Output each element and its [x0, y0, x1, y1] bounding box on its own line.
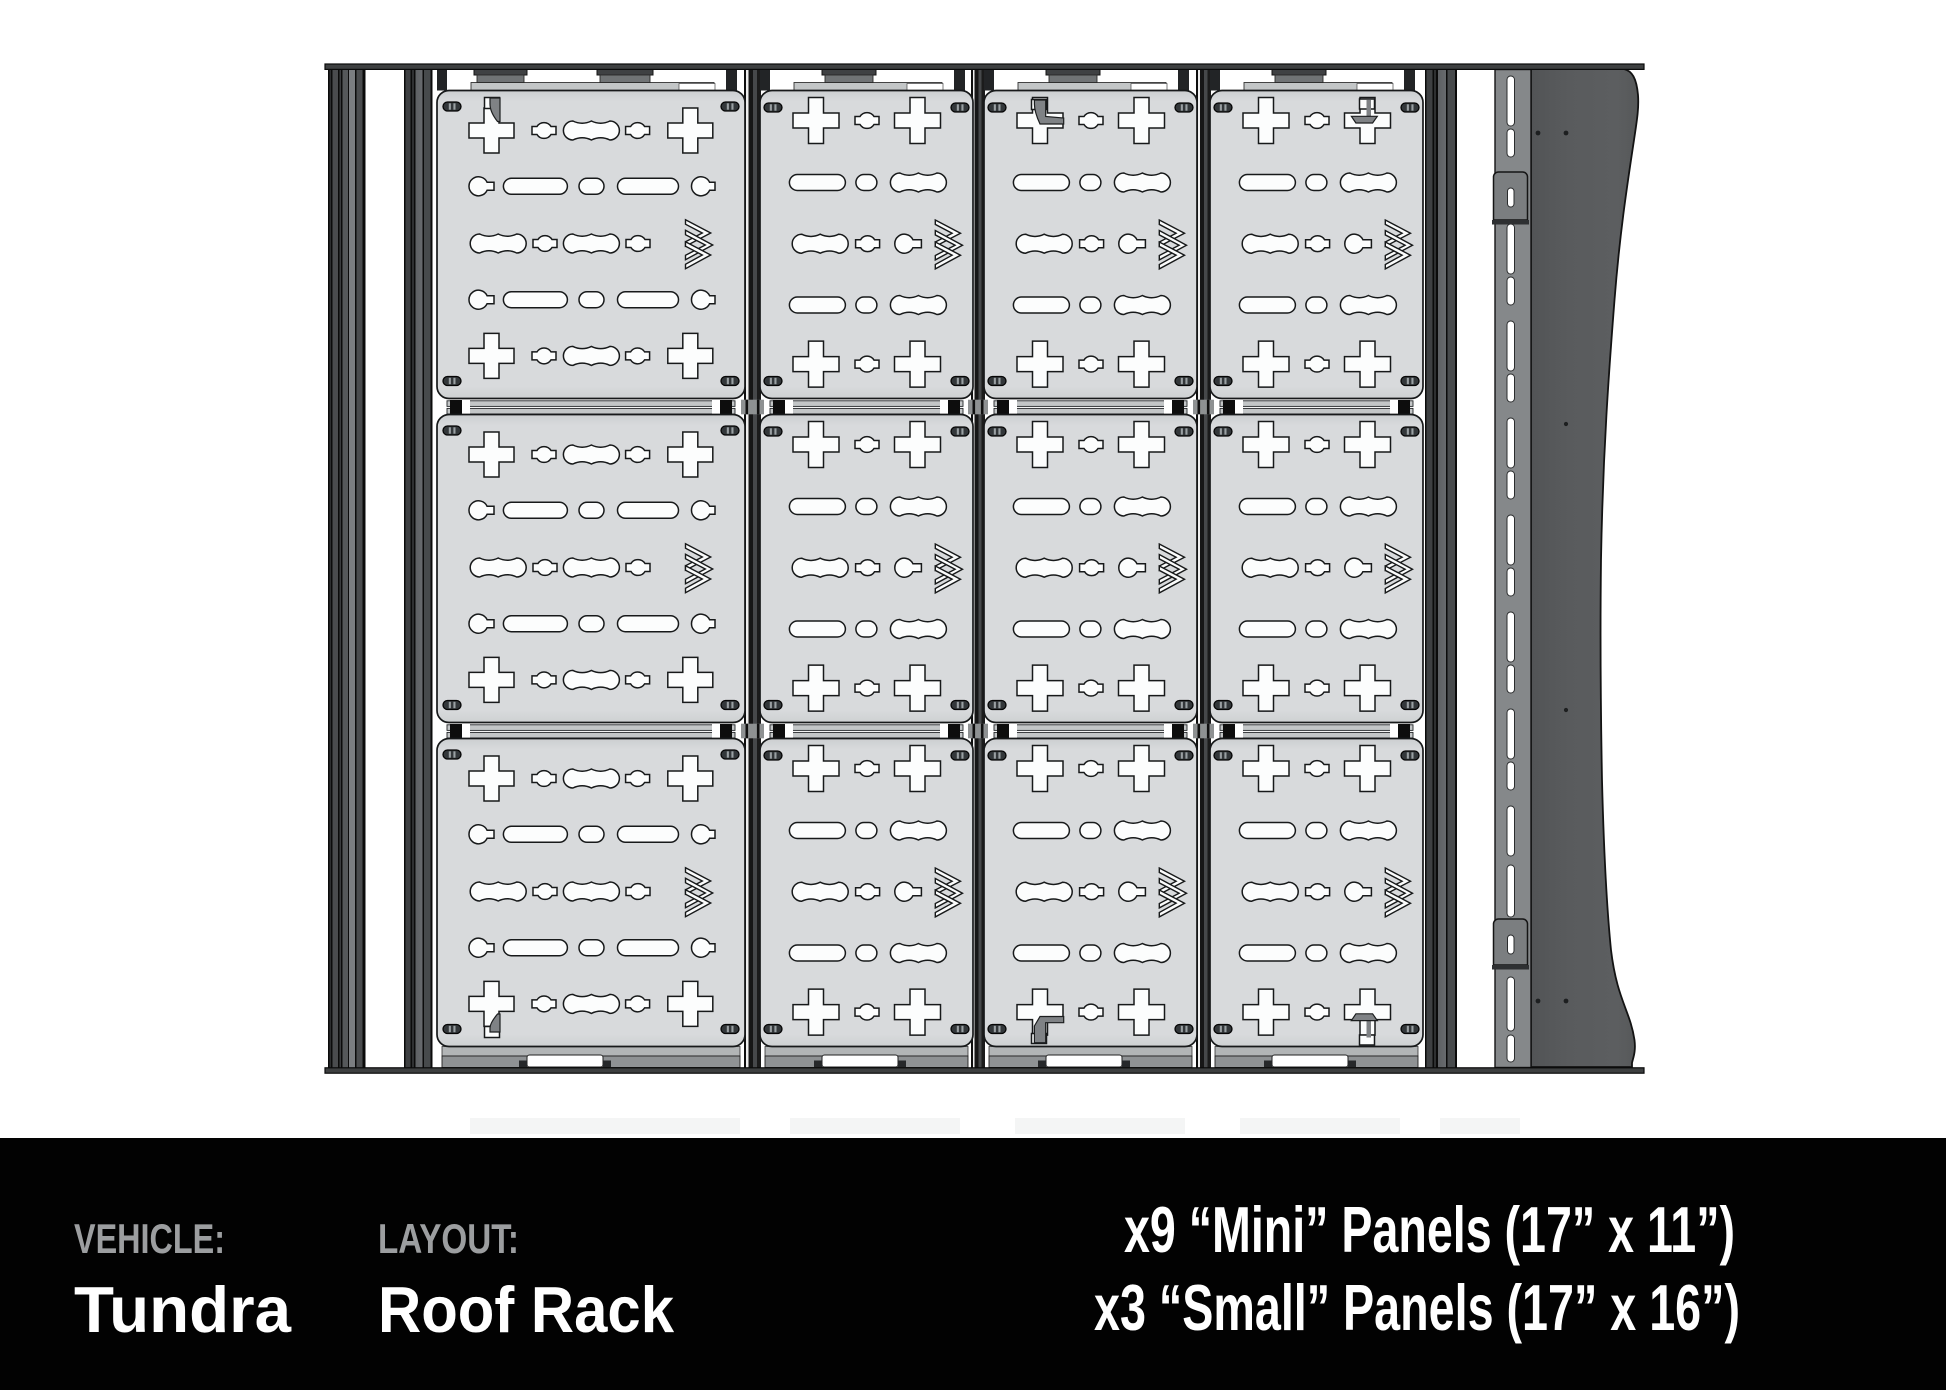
svg-text:x9 “Mini” Panels (17” x 11”): x9 “Mini” Panels (17” x 11”) [1124, 1193, 1735, 1266]
svg-text:Tundra: Tundra [74, 1273, 292, 1346]
svg-text:Roof Rack: Roof Rack [378, 1273, 675, 1346]
svg-text:x3 “Small” Panels (17” x 16”): x3 “Small” Panels (17” x 16”) [1094, 1271, 1740, 1344]
svg-text:VEHICLE:: VEHICLE: [74, 1215, 225, 1262]
svg-text:LAYOUT:: LAYOUT: [378, 1215, 519, 1262]
